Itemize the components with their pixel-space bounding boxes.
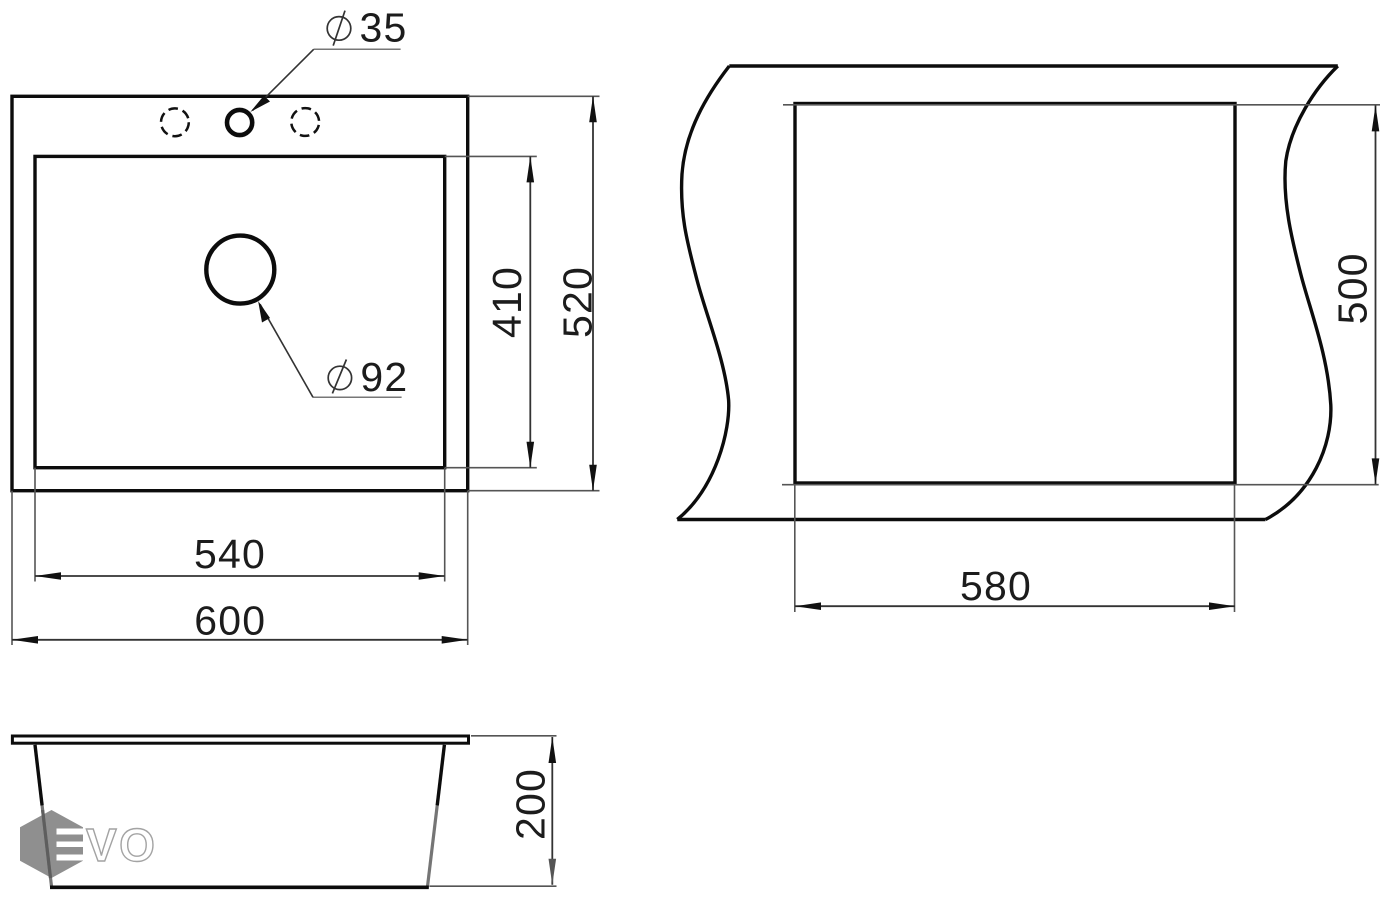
- svg-text:600: 600: [194, 598, 266, 644]
- svg-text:92: 92: [360, 354, 408, 400]
- svg-text:540: 540: [194, 531, 266, 577]
- svg-text:VO: VO: [86, 819, 157, 871]
- svg-text:580: 580: [960, 563, 1032, 609]
- svg-text:500: 500: [1330, 252, 1376, 324]
- svg-text:35: 35: [360, 4, 408, 50]
- svg-text:520: 520: [555, 266, 601, 338]
- svg-text:410: 410: [484, 266, 530, 338]
- svg-text:200: 200: [508, 768, 554, 840]
